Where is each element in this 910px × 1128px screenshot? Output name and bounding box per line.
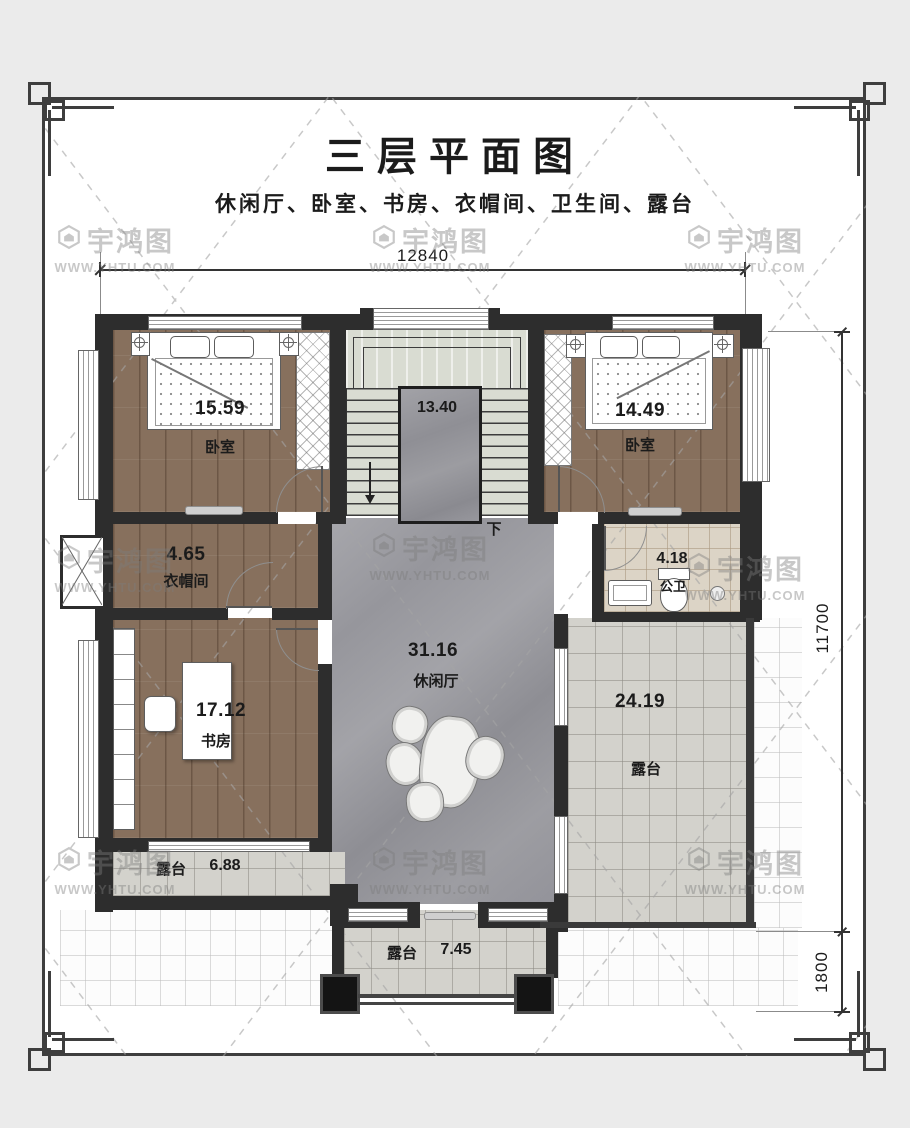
bedroom-right-area: 14.49 [580,400,700,422]
railing [746,618,754,928]
window [742,348,770,482]
extension-line [756,1011,842,1012]
window [373,308,489,330]
pillow [600,336,638,358]
stair-flight-right [476,388,530,516]
nightstand-decor-icon [567,336,584,353]
bedroom-left-area: 15.59 [160,398,280,420]
cloakroom-label: 衣帽间 [126,570,246,591]
window [554,648,568,726]
railing [540,922,756,928]
roof-eave-right [754,618,802,928]
stairs-down-label: 下 [482,518,506,539]
door-leaf [604,526,606,570]
window [488,908,548,922]
wall [360,308,374,330]
window [78,640,99,838]
pillow [214,336,254,358]
window [612,316,714,330]
nightstand-decor-icon [714,336,731,353]
railing [358,994,514,998]
stairs-area: 13.40 [398,399,476,417]
window [78,350,99,500]
stair-landing [346,330,528,388]
cloakroom-area: 4.65 [126,544,246,566]
wall [592,524,604,622]
stair-arrow-icon [365,495,375,504]
wall [332,910,344,978]
bedroom-left-label: 卧室 [160,436,280,457]
wall [592,612,760,622]
wall [528,314,544,524]
column [320,974,360,1014]
nightstand-decor-icon [131,334,148,351]
floor-plan-canvas: 三层平面图 休闲厅、卧室、书房、衣帽间、卫生间、露台 [0,0,910,1128]
bookshelf [113,628,135,830]
study-area: 17.12 [161,700,281,722]
wall [554,614,568,648]
page-title: 三层平面图 [0,124,910,182]
dimension-height-right: 11700 [813,597,833,659]
terrace-bottom-area: 7.45 [425,941,487,959]
door-threshold [424,912,476,920]
door-threshold [185,506,243,515]
terrace-right-area: 24.19 [580,691,700,713]
door-threshold [628,507,682,516]
terrace-bottom-label: 露台 [372,942,432,963]
dimension-width-top: 12840 [363,246,483,266]
pillow [642,336,680,358]
wall [554,724,568,816]
pillow [170,336,210,358]
wall [330,314,346,524]
window [554,816,568,894]
window [148,316,302,330]
bedroom-right-label: 卧室 [580,434,700,455]
wall [95,608,228,620]
railing [358,1002,514,1005]
wardrobe [296,332,330,470]
bathroom-area: 4.18 [632,550,712,568]
door-leaf [321,466,323,512]
hall-area: 31.16 [373,640,493,662]
door-leaf [558,466,560,512]
extension-line [768,331,842,332]
bathroom-label: 公卫 [633,576,713,595]
stair-direction-line [369,462,371,496]
column [514,974,554,1014]
cloakroom-floor [113,524,318,608]
hall-label: 休闲厅 [376,670,496,691]
extension-line [756,931,842,932]
roof-eave-bottom-left [60,910,332,1006]
nightstand-decor-icon [280,334,297,351]
door-leaf [276,628,318,630]
hall-floor [332,518,554,904]
terrace-left-area: 6.88 [195,857,255,875]
wall [318,664,332,845]
terrace-left-label: 露台 [141,858,201,879]
wall [318,524,332,620]
window [348,908,408,922]
roof-eave-bottom-right [558,928,798,1006]
window [148,841,310,852]
dimension-line [100,269,745,271]
study-label: 书房 [156,730,276,751]
page-subtitle: 休闲厅、卧室、书房、衣帽间、卫生间、露台 [0,188,910,218]
wall [528,512,558,524]
door-leaf [226,606,272,608]
dimension-line [841,332,843,1012]
dimension-height-right-lower: 1800 [812,944,832,1000]
elevator-shaft [60,535,106,609]
wall [316,512,332,524]
wall [95,896,345,910]
terrace-right-label: 露台 [586,758,706,779]
